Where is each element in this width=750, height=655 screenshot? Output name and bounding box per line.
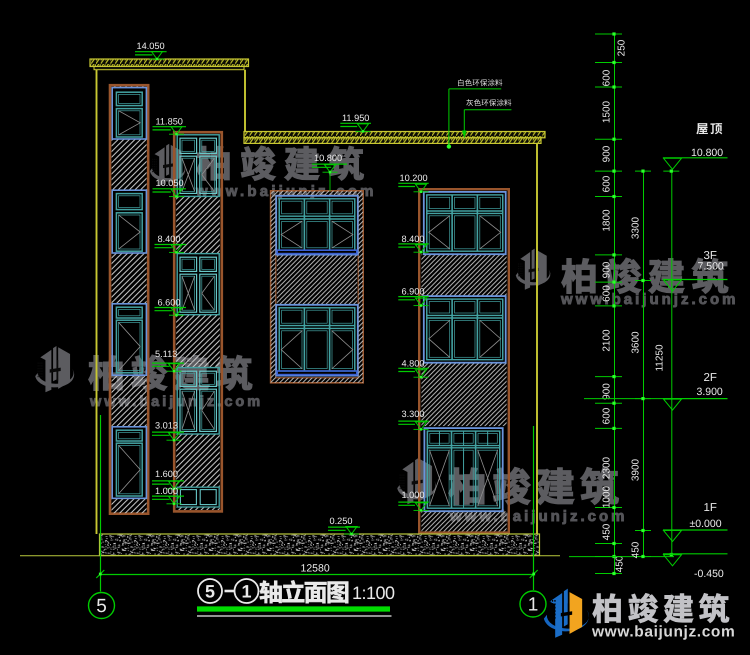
svg-text:10.200: 10.200	[400, 173, 428, 183]
svg-text:450: 450	[631, 541, 642, 558]
svg-text:-0.450: -0.450	[694, 568, 724, 580]
svg-text:600: 600	[602, 407, 613, 424]
svg-text:600: 600	[602, 69, 613, 86]
svg-text:1.000: 1.000	[155, 486, 178, 496]
svg-text:900: 900	[602, 261, 613, 278]
svg-text:2F: 2F	[704, 372, 717, 384]
svg-text:www.baijunjz.com: www.baijunjz.com	[591, 624, 735, 641]
svg-text:1: 1	[241, 582, 251, 602]
svg-text:1F: 1F	[704, 502, 717, 514]
svg-text:900: 900	[602, 145, 613, 162]
svg-text:3.013: 3.013	[155, 421, 178, 431]
svg-text:2100: 2100	[602, 329, 613, 352]
svg-text:7.500: 7.500	[698, 261, 724, 273]
svg-text:250: 250	[617, 39, 628, 56]
svg-text:1000: 1000	[602, 485, 613, 508]
svg-text:3.300: 3.300	[402, 409, 425, 419]
svg-text:600: 600	[602, 285, 613, 302]
svg-text:1500: 1500	[602, 100, 613, 123]
svg-text:11250: 11250	[655, 344, 666, 372]
svg-text:450: 450	[615, 555, 626, 572]
svg-text:3900: 3900	[631, 458, 642, 481]
svg-text:8.400: 8.400	[402, 234, 425, 244]
svg-text:11.950: 11.950	[342, 113, 369, 123]
svg-text:1:100: 1:100	[352, 583, 395, 603]
svg-text:1.600: 1.600	[155, 469, 178, 479]
svg-text:5: 5	[96, 596, 107, 617]
svg-text:8.400: 8.400	[158, 234, 181, 244]
svg-text:450: 450	[602, 523, 613, 540]
svg-text:3600: 3600	[631, 331, 642, 354]
svg-text:5: 5	[205, 582, 215, 602]
svg-text:4.800: 4.800	[402, 358, 425, 368]
svg-text:0.250: 0.250	[330, 516, 353, 526]
svg-text:www.baijunjz.com: www.baijunjz.com	[560, 291, 738, 308]
svg-text:1800: 1800	[602, 209, 613, 232]
svg-text:6.600: 6.600	[158, 297, 181, 307]
svg-text:1.000: 1.000	[402, 490, 425, 500]
svg-text:1: 1	[528, 595, 539, 616]
svg-text:900: 900	[602, 383, 613, 400]
svg-text:600: 600	[602, 175, 613, 192]
svg-text:3.900: 3.900	[697, 386, 723, 398]
svg-text:10.800: 10.800	[314, 153, 342, 163]
svg-text:10.050: 10.050	[156, 178, 184, 188]
svg-text:3300: 3300	[631, 216, 642, 239]
svg-text:12580: 12580	[301, 563, 330, 575]
svg-text:11.850: 11.850	[156, 117, 183, 127]
svg-text:5.113: 5.113	[155, 349, 177, 359]
svg-text:6.900: 6.900	[402, 286, 425, 296]
svg-text:±0.000: ±0.000	[690, 518, 722, 530]
svg-text:14.050: 14.050	[137, 41, 165, 51]
svg-text:2300: 2300	[602, 456, 613, 479]
